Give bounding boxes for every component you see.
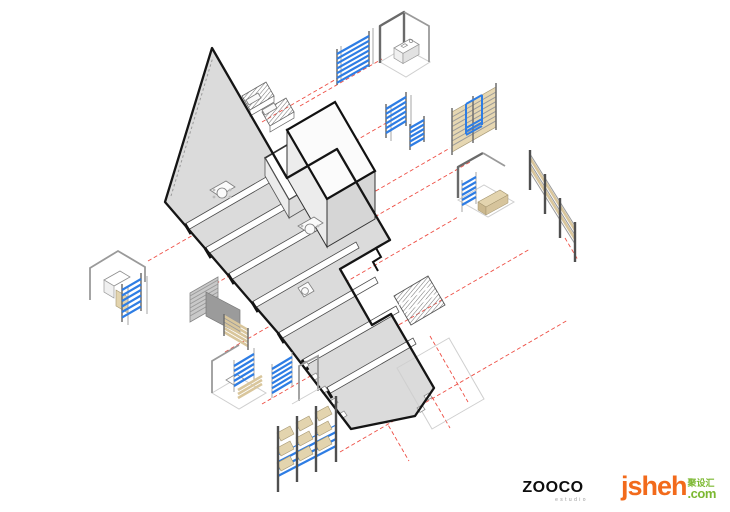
display-rack-bottom: [277, 396, 336, 492]
jsheh-logo-text: jsheh: [621, 473, 687, 500]
page: ZOOCO estudio jsheh 聚设汇 .com: [0, 0, 730, 512]
blue-shelf-mid-small: [410, 116, 424, 150]
zooco-logo-text: ZOOCO: [518, 480, 588, 496]
zooco-logo: ZOOCO estudio: [518, 480, 588, 503]
corner-bench-unit: [458, 153, 514, 217]
zooco-logo-subtitle: estudio: [518, 497, 588, 503]
long-tan-partition: [530, 150, 575, 262]
blue-shelf-mid: [386, 92, 411, 141]
exploded-axonometric-diagram: [0, 0, 730, 512]
stair-bottom: [394, 276, 445, 325]
corner-shelf-left: [90, 251, 147, 325]
jsheh-logo-tld: .com: [688, 488, 716, 500]
blue-shelf-top: [337, 28, 373, 85]
jsheh-logo: jsheh 聚设汇 .com: [621, 473, 716, 500]
kitchen-corner-unit: [380, 12, 430, 77]
corner-unit-lower: [212, 345, 266, 409]
tan-wardrobe-unit: [452, 83, 496, 155]
